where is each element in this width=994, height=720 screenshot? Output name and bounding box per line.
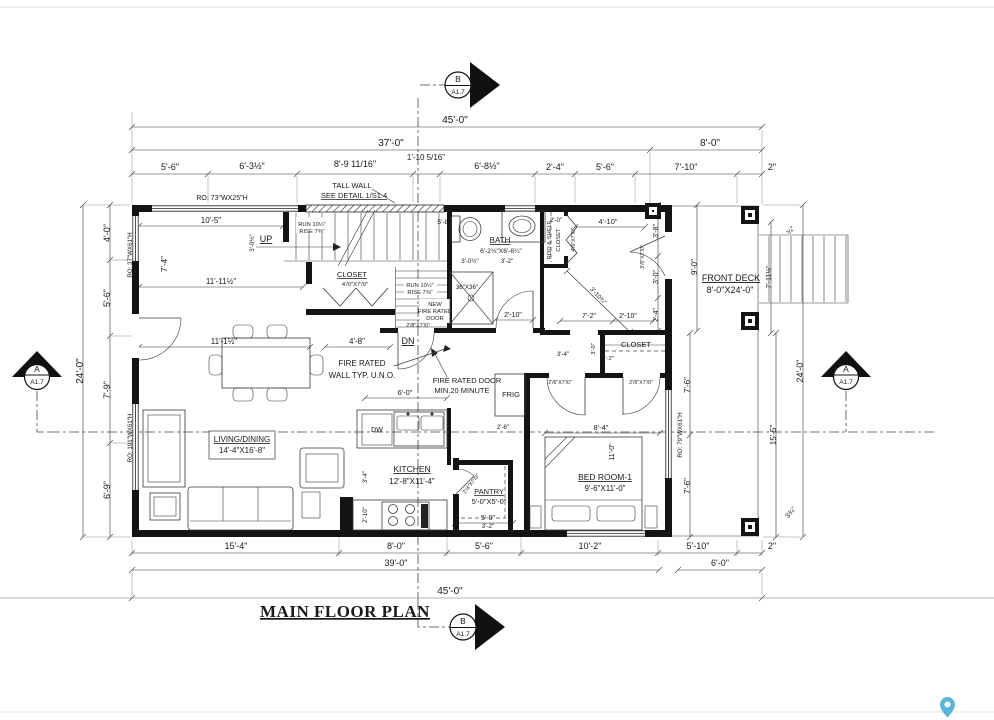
new-fire-door-1: NEW bbox=[428, 302, 442, 308]
dim-8-4: 8'-4" bbox=[594, 423, 609, 432]
dim-11-1: 11'-1½" bbox=[211, 337, 238, 346]
stair-closet-label: CLOSET bbox=[337, 270, 367, 279]
fire-labels-leaders bbox=[394, 345, 451, 366]
dim-right-7-11: 7'-11½" bbox=[765, 265, 773, 289]
kitchen-dims: 12'-8"X11'-4" bbox=[389, 477, 435, 486]
marker-bottom-sheet: A1.7 bbox=[456, 631, 470, 638]
fire-wall-label-2: WALL TYP. U.N.O. bbox=[329, 371, 396, 380]
dim-right-3-0: 3'-0" bbox=[653, 270, 660, 284]
dim-2-10b: 2'-10" bbox=[504, 312, 522, 319]
dim-11-11: 11'-11½" bbox=[206, 277, 236, 286]
living-dining-label-box: LIVING/DINING 14'-4"X16'-8" bbox=[209, 431, 275, 459]
dim-top-7-10: 7'-10" bbox=[675, 162, 698, 172]
dim-left-24: 24'-0" bbox=[75, 358, 86, 384]
dim-right-15-5: 15'-5" bbox=[769, 425, 778, 446]
dim-top-37: 37'-0" bbox=[378, 138, 404, 149]
page-title: MAIN FLOOR PLAN bbox=[260, 602, 430, 621]
section-marker-left: A A1.7 bbox=[12, 351, 62, 390]
front-door-size: 3'/0"X7'/0" bbox=[640, 245, 646, 269]
side-door bbox=[132, 314, 181, 360]
dim-3-10: 3'-10¾" bbox=[588, 286, 607, 306]
deck-post bbox=[645, 203, 661, 219]
deck-post bbox=[741, 206, 759, 224]
dim-right-2-4: 2'-4" bbox=[653, 308, 660, 322]
dishwasher-label: DW bbox=[371, 427, 383, 434]
dim-11-0: 11'-0" bbox=[609, 443, 616, 461]
dim-3-0b: 3'-0½" bbox=[461, 258, 478, 265]
pantry-dims: 5'-0"X5'-0" bbox=[472, 497, 507, 506]
fire-door-label-2: MIN.20 MINUTE bbox=[434, 386, 489, 395]
ro-left-lower-label: RO: 191"WX61"H bbox=[127, 414, 134, 463]
dim-top-5-6b: 5'-6" bbox=[596, 162, 614, 172]
dim-7-4: 7'-4" bbox=[160, 256, 169, 272]
dim-bot-8-0: 8'-0" bbox=[387, 541, 405, 551]
run-label-1: RUN 10½" bbox=[298, 221, 326, 228]
dim-bot-5-10: 5'-10" bbox=[687, 541, 710, 551]
up-label: UP bbox=[260, 234, 273, 244]
marker-top-letter: B bbox=[455, 74, 461, 84]
dim-top-2-4: 2'-4" bbox=[546, 162, 564, 172]
dim-left-5-6: 5'-6" bbox=[102, 289, 112, 307]
dim-10-5: 10'-5" bbox=[201, 216, 222, 225]
bathroom bbox=[450, 211, 545, 333]
dim-top-8-9: 8'-9 11/16" bbox=[334, 159, 376, 169]
dim-5-8: 5'-8" bbox=[437, 219, 451, 226]
dim-5-0: 5'-0" bbox=[481, 515, 495, 522]
marker-bottom-letter: B bbox=[460, 616, 466, 626]
closet-door-size: 2'/6"X7'/0" bbox=[629, 380, 653, 386]
section-marker-top: B A1.7 bbox=[445, 62, 500, 108]
dim-top-5-6: 5'-6" bbox=[161, 162, 179, 172]
section-marker-right: A A1.7 bbox=[821, 351, 871, 390]
dim-right-3-8: 3'-8" bbox=[653, 224, 660, 238]
shower-size-label: 36"X36" bbox=[456, 284, 478, 291]
front-deck-label: FRONT DECK bbox=[702, 273, 760, 283]
dim-bot-39: 39'-0" bbox=[385, 558, 408, 568]
dim-left-6-9: 6'-9" bbox=[102, 481, 112, 499]
dim-7-2: 7'-2" bbox=[582, 313, 596, 320]
dim-top-2: 2" bbox=[768, 162, 776, 172]
dim-bot-6-0: 6'-0" bbox=[711, 558, 729, 568]
tall-wall-detail: SEE DETAIL 1/S1.4 bbox=[321, 191, 387, 200]
dim-3-2b: 3'-2" bbox=[501, 258, 513, 265]
stair-closet-door-size: 4'/0"X7'/0" bbox=[342, 282, 368, 288]
kitchen-label: KITCHEN bbox=[393, 464, 430, 474]
dim-bot-45: 45'-0" bbox=[437, 586, 463, 597]
dim-bot-15-4: 15'-4" bbox=[225, 541, 248, 551]
living-dims: 14'-4"X16'-8" bbox=[219, 446, 265, 455]
dim-3-0h: 3'-0½" bbox=[249, 234, 256, 251]
bedroom-closet-label: CLOSET bbox=[621, 340, 651, 349]
dim-3-4c: 3'-4" bbox=[557, 351, 569, 358]
dim-2-6: 2'-6" bbox=[497, 424, 509, 431]
dim-right-334: 3¾" bbox=[785, 506, 799, 520]
dim-2-10e: 2'-10" bbox=[619, 313, 637, 320]
fire-wall-label-1: FIRE RATED bbox=[339, 359, 386, 368]
entry-closet-door-size: 4'/0"X7'/0" bbox=[571, 228, 577, 252]
dim-right-24: 24'-0" bbox=[795, 360, 805, 383]
sheet-title: MAIN FLOOR PLAN bbox=[260, 602, 430, 621]
new-fire-door-3: DOOR bbox=[426, 316, 443, 322]
rise-label-1: RISE 7⅜" bbox=[299, 229, 324, 235]
dim-bot-5-6: 5'-6" bbox=[475, 541, 493, 551]
dim-left-7-9: 7'-9" bbox=[102, 381, 112, 399]
dim-bot-10-2: 10'-2" bbox=[579, 541, 602, 551]
deck-post bbox=[741, 312, 759, 330]
fire-door-size: 2'/8"X7'/0" bbox=[406, 323, 430, 329]
ro-right-label: RO: 79"WX61"H bbox=[677, 412, 684, 457]
bath-dims: 6'-2½"X6'-6¼" bbox=[480, 247, 522, 255]
rod-shelf-label: ROD & SHELF bbox=[547, 220, 553, 259]
marker-right-letter: A bbox=[843, 364, 849, 374]
bedroom-door-size: 2'/6"X7'/0" bbox=[548, 380, 572, 386]
dim-top-1-10: 1'-10 5/16" bbox=[407, 153, 445, 162]
deck-post bbox=[741, 518, 759, 536]
living-label: LIVING/DINING bbox=[214, 435, 270, 444]
fire-door-label-1: FIRE RATED DOOR bbox=[433, 376, 502, 385]
run-label-2: RUN 10½" bbox=[406, 282, 434, 289]
dim-3-0c: 3'-0" bbox=[591, 343, 597, 355]
bedroom-label: BED ROOM-1 bbox=[578, 472, 632, 482]
dim-3-4k: 3'-4" bbox=[362, 471, 369, 483]
entry-closet-label: CLOSET bbox=[556, 228, 562, 252]
dim-top-8: 8'-0" bbox=[700, 138, 720, 149]
marker-right-sheet: A1.7 bbox=[839, 379, 853, 386]
bedroom-dims: 9'-6"X11'-0" bbox=[584, 484, 625, 493]
front-door bbox=[630, 232, 672, 279]
pantry-label: PANTRY bbox=[474, 487, 504, 496]
new-fire-door-2: FIRE RATED bbox=[418, 309, 452, 315]
marker-top-sheet: A1.7 bbox=[451, 89, 465, 96]
ro-top-label: RO: 73"WX25"H bbox=[196, 195, 247, 202]
floor-plan-drawing: B A1.7 B A1.7 A A1.7 A A1.7 45'-0" 37'-0… bbox=[0, 0, 994, 720]
front-deck bbox=[645, 203, 848, 537]
dim-right-9-0: 9'-0" bbox=[690, 259, 699, 275]
section-marker-bottom: B A1.7 bbox=[450, 604, 505, 650]
front-deck-dims: 8'-0"X24'-0" bbox=[707, 285, 754, 295]
dim-right-7-6b: 7'-6" bbox=[683, 478, 692, 494]
dim-left-4-0: 4'-0" bbox=[102, 224, 112, 242]
dim-right-7-6a: 7'-6" bbox=[683, 377, 692, 393]
fridge-label: FRIG bbox=[502, 390, 520, 399]
tall-wall-label: TALL WALL bbox=[332, 181, 371, 190]
dim-3-2p: 3'-2" bbox=[482, 523, 494, 530]
ro-left-upper-label: RO: 37"WX61"H bbox=[127, 232, 134, 277]
bath-label: BATH bbox=[490, 236, 511, 245]
marker-left-letter: A bbox=[34, 364, 40, 374]
location-pin-icon bbox=[940, 697, 955, 718]
dim-6-0k: 6'-0" bbox=[398, 388, 413, 397]
living-room-furniture bbox=[143, 410, 344, 530]
stair-closet bbox=[323, 288, 388, 306]
dim-2-10k: 2'-10" bbox=[362, 507, 369, 523]
dim-top-45: 45'-0" bbox=[442, 115, 468, 126]
rise-label-2: RISE 7⅜" bbox=[407, 290, 432, 296]
marker-left-sheet: A1.7 bbox=[30, 379, 44, 386]
dn-label: DN bbox=[402, 336, 415, 346]
dim-4-10: 4'-10" bbox=[598, 217, 617, 226]
dim-top-6-8: 6'-8½" bbox=[474, 161, 499, 171]
floor-plan-sheet: B A1.7 B A1.7 A A1.7 A A1.7 45'-0" 37'-0… bbox=[0, 0, 994, 720]
dim-bot-2: 2" bbox=[768, 541, 776, 551]
dim-top-6-3: 6'-3½" bbox=[239, 161, 264, 171]
dim-1-2: 1'-2" bbox=[602, 356, 614, 362]
dim-4-8: 4'-8" bbox=[349, 337, 365, 346]
